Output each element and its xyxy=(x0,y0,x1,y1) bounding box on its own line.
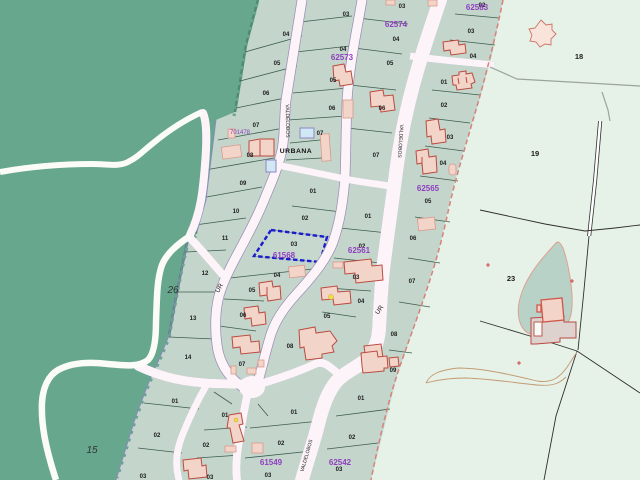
svg-text:11: 11 xyxy=(222,236,229,242)
svg-text:61549: 61549 xyxy=(260,458,283,467)
svg-text:62573: 62573 xyxy=(331,53,354,62)
svg-text:62574: 62574 xyxy=(385,20,408,29)
svg-text:02: 02 xyxy=(203,443,210,449)
svg-text:02: 02 xyxy=(154,433,161,439)
svg-text:03: 03 xyxy=(468,29,475,35)
svg-text:03: 03 xyxy=(447,135,454,141)
svg-text:01: 01 xyxy=(358,396,365,402)
svg-text:04: 04 xyxy=(358,299,365,305)
svg-text:URBANA: URBANA xyxy=(280,148,312,155)
svg-text:04: 04 xyxy=(393,37,400,43)
svg-text:01: 01 xyxy=(365,214,372,220)
svg-text:62542: 62542 xyxy=(329,458,352,467)
svg-text:01: 01 xyxy=(172,399,179,405)
svg-text:01: 01 xyxy=(291,410,298,416)
svg-text:06: 06 xyxy=(263,91,270,97)
svg-text:03: 03 xyxy=(291,242,298,248)
svg-text:01: 01 xyxy=(222,413,229,419)
svg-text:12: 12 xyxy=(202,271,209,277)
svg-text:03: 03 xyxy=(207,475,214,480)
svg-text:10: 10 xyxy=(233,209,240,215)
svg-text:04: 04 xyxy=(283,32,290,38)
svg-text:62565: 62565 xyxy=(417,184,440,193)
svg-text:08: 08 xyxy=(287,344,294,350)
svg-text:62583: 62583 xyxy=(466,3,489,12)
svg-text:26: 26 xyxy=(166,285,179,296)
svg-text:03: 03 xyxy=(336,467,343,473)
svg-text:07: 07 xyxy=(373,153,380,159)
svg-text:06: 06 xyxy=(240,313,247,319)
svg-text:04: 04 xyxy=(274,273,281,279)
svg-text:02: 02 xyxy=(302,216,309,222)
svg-text:14: 14 xyxy=(185,355,192,361)
svg-text:01: 01 xyxy=(441,80,448,86)
svg-text:01: 01 xyxy=(310,189,317,195)
svg-text:09: 09 xyxy=(390,368,397,374)
svg-text:15: 15 xyxy=(86,445,98,456)
svg-text:05: 05 xyxy=(249,288,256,294)
svg-text:62561: 62561 xyxy=(348,246,371,255)
svg-text:02: 02 xyxy=(349,435,356,441)
svg-text:61568: 61568 xyxy=(273,251,296,260)
svg-text:08: 08 xyxy=(247,153,254,159)
svg-text:03: 03 xyxy=(399,4,406,10)
svg-text:02: 02 xyxy=(278,441,285,447)
svg-text:701478: 701478 xyxy=(230,130,251,136)
svg-text:13: 13 xyxy=(190,316,197,322)
svg-text:03: 03 xyxy=(265,473,272,479)
svg-text:09: 09 xyxy=(240,181,247,187)
svg-text:19: 19 xyxy=(531,149,539,158)
svg-text:03: 03 xyxy=(343,12,350,18)
svg-text:04: 04 xyxy=(440,161,447,167)
svg-text:04: 04 xyxy=(470,54,477,60)
svg-text:03: 03 xyxy=(353,275,360,281)
svg-text:08: 08 xyxy=(391,332,398,338)
svg-text:05: 05 xyxy=(425,199,432,205)
svg-text:23: 23 xyxy=(507,274,515,283)
svg-text:05: 05 xyxy=(324,314,331,320)
svg-text:05: 05 xyxy=(330,78,337,84)
svg-text:06: 06 xyxy=(410,236,417,242)
svg-text:06: 06 xyxy=(329,106,336,112)
svg-text:07: 07 xyxy=(317,131,324,137)
svg-text:18: 18 xyxy=(575,52,583,61)
svg-text:06: 06 xyxy=(379,106,386,112)
svg-text:05: 05 xyxy=(274,61,281,67)
svg-text:07: 07 xyxy=(239,362,246,368)
svg-text:05: 05 xyxy=(387,61,394,67)
svg-text:07: 07 xyxy=(253,123,260,129)
svg-text:VALDELOBOS: VALDELOBOS xyxy=(284,104,291,138)
svg-text:03: 03 xyxy=(140,474,147,480)
svg-text:07: 07 xyxy=(409,279,416,285)
svg-text:02: 02 xyxy=(441,103,448,109)
